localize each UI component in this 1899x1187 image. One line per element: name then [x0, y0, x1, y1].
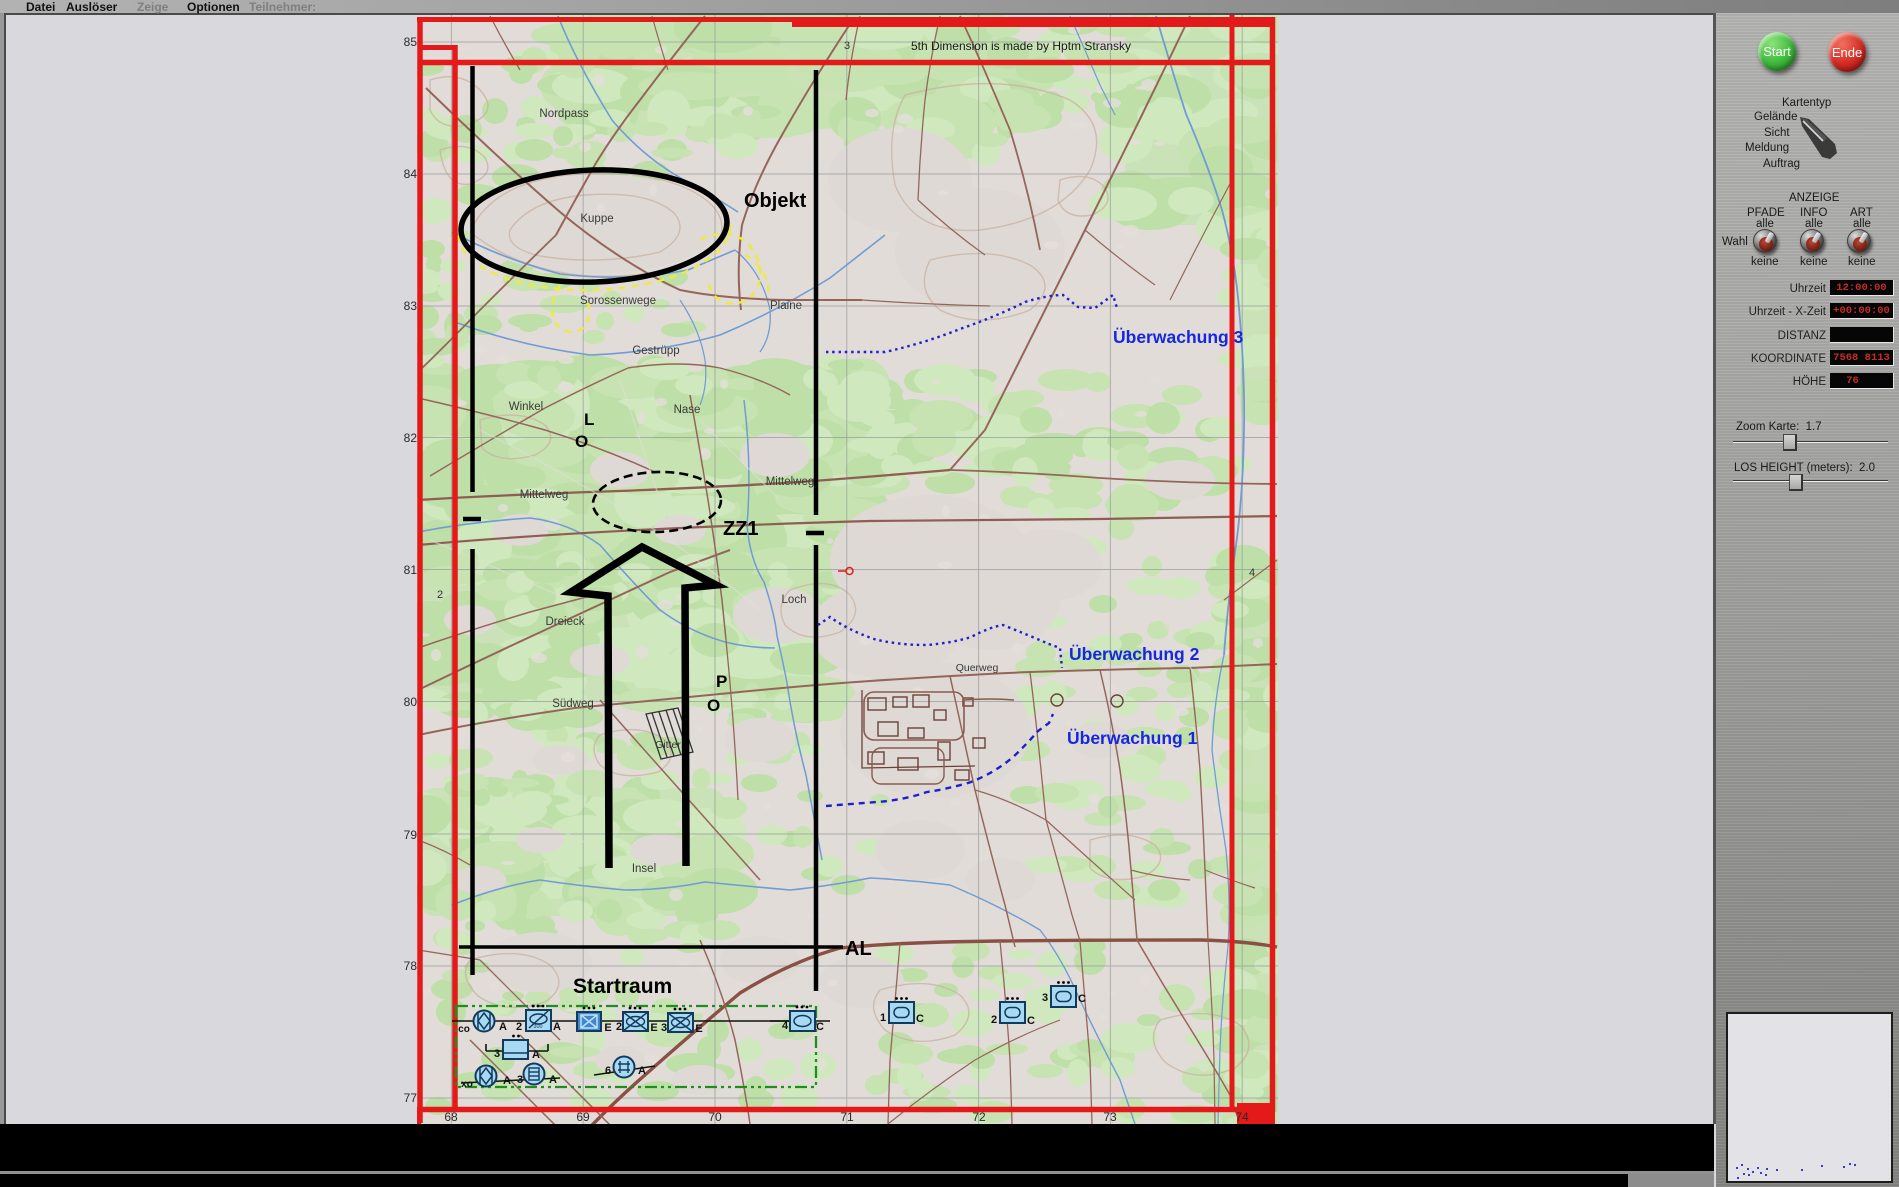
svg-text:A: A	[532, 1049, 540, 1061]
svg-text:P: P	[716, 672, 727, 691]
svg-text:3: 3	[1042, 992, 1048, 1004]
svg-text:A: A	[499, 1021, 507, 1033]
svg-text:300: 300	[533, 1024, 542, 1030]
svg-text:69: 69	[576, 1110, 590, 1124]
svg-text:E: E	[695, 1023, 702, 1035]
svg-text:83: 83	[404, 299, 418, 313]
svg-text:Winkel: Winkel	[509, 401, 544, 413]
svg-text:Überwachung 1: Überwachung 1	[1067, 728, 1198, 748]
svg-text:81: 81	[404, 563, 418, 577]
svg-text:74: 74	[1235, 1110, 1249, 1124]
svg-text:C: C	[816, 1021, 824, 1033]
svg-text:Dreieck: Dreieck	[546, 616, 585, 628]
svg-text:A: A	[553, 1021, 561, 1033]
svg-text:Gestrüpp: Gestrüpp	[632, 345, 679, 357]
svg-text:Querweg: Querweg	[956, 662, 999, 674]
svg-text:Plaine: Plaine	[770, 300, 802, 312]
svg-text:L: L	[584, 410, 594, 429]
svg-text:C: C	[1078, 993, 1086, 1005]
svg-text:2: 2	[516, 1021, 522, 1033]
svg-text:Überwachung 3: Überwachung 3	[1113, 327, 1244, 347]
svg-text:A: A	[549, 1074, 557, 1086]
svg-text:co: co	[458, 1024, 470, 1035]
svg-text:Sprossenwege: Sprossenwege	[580, 295, 656, 307]
svg-text:C: C	[916, 1013, 924, 1025]
svg-text:79: 79	[404, 828, 418, 842]
svg-text:80: 80	[404, 695, 418, 709]
svg-text:O: O	[575, 432, 588, 451]
svg-text:2: 2	[437, 589, 443, 601]
svg-text:xo: xo	[461, 1079, 473, 1090]
svg-text:Mittelweg: Mittelweg	[766, 476, 815, 488]
svg-text:Insel: Insel	[632, 863, 656, 875]
svg-text:AL: AL	[845, 938, 872, 960]
svg-text:2: 2	[616, 1021, 622, 1033]
svg-text:3: 3	[494, 1048, 500, 1060]
svg-text:ZZ1: ZZ1	[723, 518, 759, 540]
svg-text:71: 71	[840, 1110, 854, 1124]
svg-text:85: 85	[404, 35, 418, 49]
svg-text:84: 84	[404, 167, 418, 181]
svg-text:Startraum: Startraum	[573, 975, 672, 998]
svg-text:O: O	[707, 696, 720, 715]
svg-text:3: 3	[661, 1022, 667, 1034]
svg-text:A: A	[638, 1065, 646, 1077]
svg-text:3: 3	[844, 40, 850, 52]
svg-text:82: 82	[404, 431, 418, 445]
svg-text:78: 78	[404, 959, 418, 973]
svg-text:72: 72	[972, 1110, 986, 1124]
svg-text:C: C	[1027, 1015, 1035, 1027]
svg-text:Südweg: Südweg	[552, 698, 594, 710]
svg-text:A: A	[503, 1075, 511, 1087]
svg-text:Nordpass: Nordpass	[539, 108, 588, 120]
svg-text:Objekt: Objekt	[744, 190, 807, 212]
svg-text:2: 2	[991, 1014, 997, 1026]
svg-text:Mittelweg: Mittelweg	[520, 489, 569, 501]
svg-text:Loch: Loch	[782, 594, 807, 606]
svg-text:Kuppe: Kuppe	[580, 213, 613, 225]
svg-text:Nase: Nase	[674, 404, 701, 416]
svg-text:73: 73	[1103, 1110, 1117, 1124]
svg-text:E: E	[604, 1022, 611, 1034]
svg-text:Überwachung 2: Überwachung 2	[1069, 644, 1200, 664]
svg-text:4: 4	[782, 1020, 789, 1032]
svg-text:77: 77	[404, 1091, 418, 1105]
svg-text:3: 3	[517, 1074, 523, 1086]
svg-text:6: 6	[605, 1065, 611, 1077]
svg-text:5th Dimension is made by Hptm: 5th Dimension is made by Hptm Stransky	[911, 39, 1131, 53]
svg-text:4: 4	[1249, 567, 1255, 579]
svg-text:70: 70	[708, 1110, 722, 1124]
svg-text:68: 68	[444, 1110, 458, 1124]
svg-text:E: E	[650, 1022, 657, 1034]
svg-text:1: 1	[880, 1012, 886, 1024]
